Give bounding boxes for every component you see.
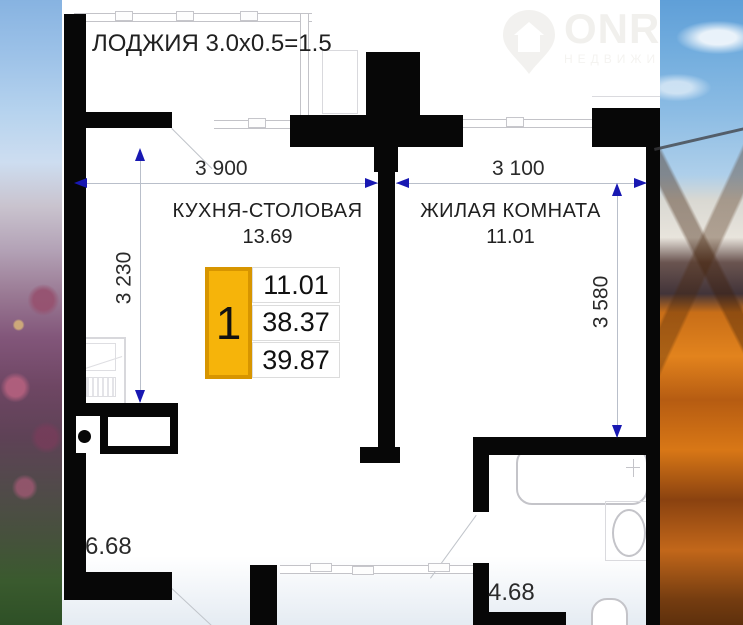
room-area-kitchen: 13.69 — [165, 226, 370, 249]
bathtub — [516, 447, 648, 505]
wall-segment-bathroom-left-upper — [473, 437, 489, 512]
dimension-living-depth: 3 580 — [589, 276, 613, 329]
dimension-arrow — [135, 148, 145, 161]
wall-segment-bathroom-top — [473, 437, 662, 455]
wall-segment-left — [64, 14, 86, 600]
apartment-info-card: 1 11.01 38.37 39.87 — [205, 267, 340, 380]
room-name-kitchen: КУХНЯ-СТОЛОВАЯ — [165, 200, 370, 223]
crane-jib — [654, 123, 743, 151]
room-area-living: 11.01 — [408, 226, 613, 249]
room-count-badge: 1 — [205, 267, 252, 379]
window-mullion — [176, 11, 194, 21]
dimension-arrow — [634, 178, 647, 188]
wall-segment-bathroom-niche — [480, 612, 566, 625]
dimension-arrow — [365, 178, 378, 188]
living-area-value: 11.01 — [252, 267, 340, 303]
dimension-arrow — [135, 390, 145, 403]
wall-segment-entry-jamb — [250, 565, 277, 625]
duct-shaft — [100, 409, 178, 454]
dimension-line — [76, 183, 378, 184]
house-pin-icon — [500, 8, 558, 78]
wall-segment-shaft-top — [366, 52, 420, 118]
living-window-line — [463, 119, 592, 128]
dimension-arrow — [396, 178, 409, 188]
partition-mark — [352, 566, 374, 575]
room-area-hall: 6.68 — [85, 533, 132, 561]
wall-segment-divider-stub — [360, 447, 400, 463]
toilet — [591, 598, 628, 625]
facade-line — [592, 96, 660, 97]
wall-segment-room-divider — [378, 172, 395, 455]
dimension-kitchen-depth: 3 230 — [112, 252, 136, 305]
window-mullion — [115, 11, 133, 21]
stove-icon — [86, 377, 116, 397]
floorplan-screenshot: ONRE НЕДВИЖИМОС — [0, 0, 743, 625]
dimension-line — [396, 183, 648, 184]
window-mullion — [506, 117, 524, 127]
photo-strip-left — [0, 0, 62, 625]
area-values: 11.01 38.37 39.87 — [252, 267, 340, 380]
area-without-loggia-value: 38.37 — [252, 305, 340, 341]
loggia-label: ЛОДЖИЯ 3.0х0.5=1.5 — [92, 30, 332, 58]
dimension-arrow — [612, 183, 622, 196]
dimension-arrow — [74, 178, 87, 188]
room-name-living: ЖИЛАЯ КОМНАТА — [408, 200, 613, 223]
window-mullion — [248, 118, 266, 128]
riser-dot — [78, 430, 91, 443]
neighbor-loggia-door-outline — [322, 50, 358, 114]
washbasin — [612, 509, 646, 557]
dimension-kitchen-width: 3 900 — [195, 157, 248, 181]
room-area-bathroom: 4.68 — [488, 579, 535, 607]
window-mullion — [240, 11, 258, 21]
dimension-line — [140, 150, 141, 402]
wall-segment-shaft-stem — [374, 147, 398, 172]
photo-strip-right — [660, 0, 743, 625]
dimension-line — [617, 185, 618, 437]
wall-segment-top-center — [290, 115, 463, 147]
total-area-value: 39.87 — [252, 342, 340, 378]
dimension-arrow — [612, 425, 622, 438]
wall-segment-loggia-bottom — [64, 112, 172, 128]
partition-mark — [310, 563, 332, 572]
riser-cell — [76, 416, 100, 453]
partition-mark — [428, 563, 450, 572]
dimension-living-width: 3 100 — [492, 157, 545, 181]
faucet-icon — [633, 459, 634, 477]
wall-segment-hall-bottom — [64, 572, 172, 600]
